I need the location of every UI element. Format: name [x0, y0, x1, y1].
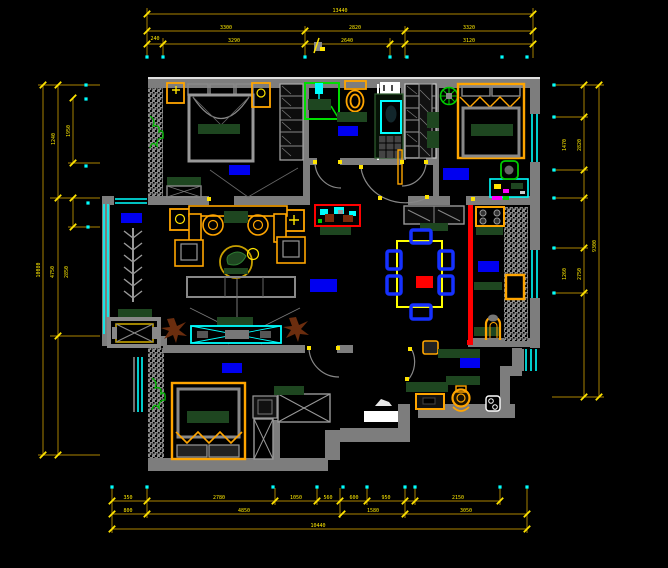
coffee-table [187, 277, 295, 297]
counter-green-a [476, 227, 503, 235]
room-label-balcony [121, 213, 142, 223]
svg-text:560: 560 [323, 495, 332, 501]
desk [490, 179, 528, 197]
console-box [416, 394, 444, 409]
dim-left-total: 10080 [36, 262, 42, 277]
shelf-a [427, 112, 439, 128]
svg-text:350: 350 [123, 495, 132, 501]
switch-box [486, 396, 500, 411]
red-dot [467, 340, 473, 345]
closet-plain [253, 396, 277, 418]
washer-icon [380, 82, 400, 94]
svg-text:2780: 2780 [213, 495, 225, 501]
svg-text:1240: 1240 [51, 133, 57, 145]
green-mark [503, 196, 509, 200]
dim-top-total: 13440 [332, 8, 347, 14]
decor-cabinet [315, 205, 360, 226]
cabinet-green-b [446, 376, 480, 385]
sideboard [404, 206, 464, 231]
room-label-entry [460, 358, 480, 368]
plant-brown-right [283, 317, 309, 342]
svg-text:3300: 3300 [220, 25, 232, 31]
dimension-lines-top: 13440 3300 2820 3320 240 3290 2640 3120 [144, 8, 536, 58]
side-table-left [170, 209, 191, 230]
svg-text:2850: 2850 [64, 266, 70, 278]
closet-x-horizontal [278, 394, 330, 422]
bed-double [188, 84, 253, 161]
cabinet-green-a [438, 349, 480, 358]
door-arc-bedroom2 [402, 162, 426, 186]
svg-text:4750: 4750 [50, 266, 56, 278]
svg-text:240: 240 [150, 36, 159, 42]
svg-text:1260: 1260 [562, 268, 568, 280]
door-arc-bedroom3 [309, 349, 339, 377]
living-room [161, 206, 309, 344]
svg-text:950: 950 [381, 495, 390, 501]
room-label-bedroom-top-right [443, 168, 469, 180]
dining-table [397, 241, 442, 307]
svg-text:1580: 1580 [367, 508, 379, 514]
svg-text:4850: 4850 [238, 508, 250, 514]
counter-green-b [474, 282, 502, 290]
svg-text:3320: 3320 [463, 25, 475, 31]
door-arc-entry [408, 350, 415, 380]
section-marker [314, 38, 325, 53]
round-table [220, 246, 259, 278]
shelf [320, 227, 351, 235]
closet-x-vertical [254, 419, 273, 459]
svg-text:2750: 2750 [577, 268, 583, 280]
svg-text:2640: 2640 [341, 38, 353, 44]
bedroom3-window [134, 357, 142, 412]
shelf [274, 386, 304, 395]
wardrobe [280, 84, 303, 160]
door-sight-lines [210, 168, 298, 197]
shower-icon [305, 83, 339, 119]
shoe-cabinet [406, 382, 448, 392]
svg-text:2820: 2820 [577, 139, 583, 151]
shelf-b [427, 131, 439, 148]
kitchen [474, 207, 528, 341]
bed-double [458, 84, 524, 158]
bedroom-bottom [152, 346, 340, 459]
fan-icon [441, 88, 458, 105]
cad-canvas[interactable]: 13440 3300 2820 3320 240 3290 2640 3120 … [0, 0, 668, 568]
washbasin-icon [375, 94, 403, 184]
svg-text:2820: 2820 [349, 25, 361, 31]
north-glyph [375, 399, 392, 406]
svg-text:3050: 3050 [460, 508, 472, 514]
dim-bottom-total: 10440 [310, 523, 325, 529]
dimension-lines-bottom: 350 2780 1050 560 600 950 2150 800 4850 … [109, 488, 530, 533]
svg-text:1950: 1950 [66, 125, 72, 137]
bedroom-top-left [150, 83, 303, 197]
hatched-wall-left-upper [148, 88, 163, 196]
stove-icon [476, 207, 504, 226]
armchair-right [277, 237, 305, 263]
armchair-left [175, 240, 203, 266]
svg-text:3120: 3120 [463, 38, 475, 44]
kitchen-window [530, 250, 540, 298]
door-arc-bathroom [315, 162, 341, 188]
tv-cabinet [191, 317, 281, 343]
svg-text:600: 600 [349, 495, 358, 501]
svg-text:2150: 2150 [452, 495, 464, 501]
bedroom2-window [530, 114, 540, 162]
bench [167, 177, 201, 197]
bed-double [172, 383, 245, 459]
svg-text:1050: 1050 [290, 495, 302, 501]
room-label-living-room [310, 279, 337, 292]
shelf [337, 112, 367, 122]
plant-rack-icon [124, 228, 142, 302]
utility-balcony [109, 319, 159, 346]
dim-right-total: 9300 [592, 240, 598, 252]
svg-text:800: 800 [123, 508, 132, 514]
hatched-wall-left-lower [148, 348, 164, 458]
room-label-kitchen [478, 261, 499, 272]
sofa [189, 206, 287, 242]
magenta-mark [492, 196, 502, 200]
sink-icon [506, 275, 524, 299]
room-label-bedroom-bottom [222, 363, 242, 373]
stool [423, 341, 438, 354]
dimension-lines-left: 10080 4750 2850 1950 1240 [36, 82, 100, 458]
desk-chair [501, 161, 518, 179]
white-block [364, 411, 398, 422]
red-wall-marker [468, 205, 473, 343]
entry-window [523, 349, 536, 371]
svg-text:3290: 3290 [228, 38, 240, 44]
room-label-bedroom-top-left [229, 165, 250, 175]
svg-text:1470: 1470 [562, 139, 568, 151]
dimension-lines-right: 1470 2820 1260 2750 9300 [552, 82, 604, 400]
bench [118, 309, 152, 318]
balcony [118, 228, 152, 318]
room-label-bathroom [338, 126, 358, 136]
